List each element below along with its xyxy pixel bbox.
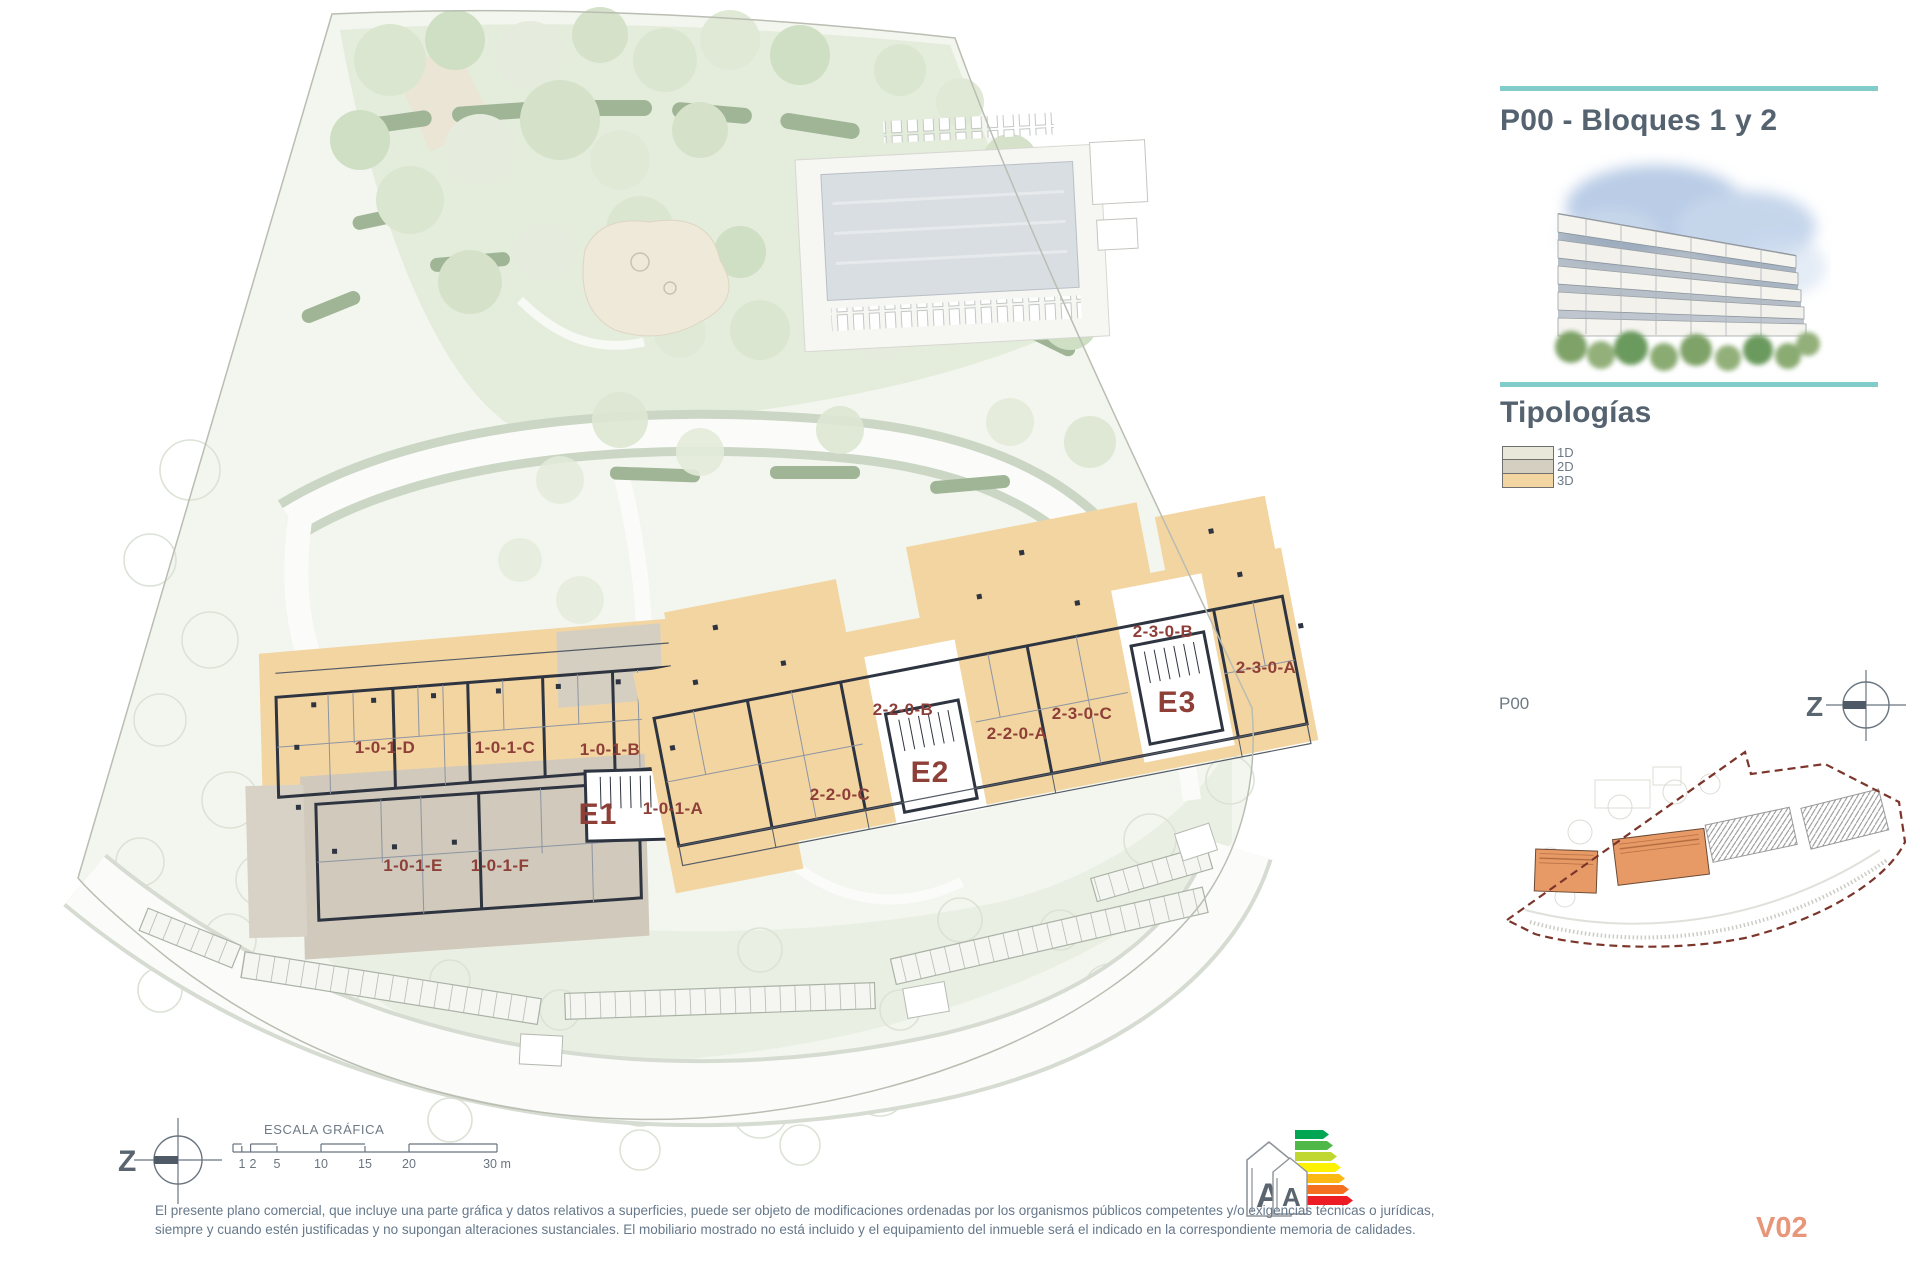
legend-label-3d: 3D (1554, 474, 1574, 488)
legend-swatch-3d (1502, 474, 1554, 488)
unit-label-1-0-1-b: 1-0-1-B (580, 740, 640, 760)
legend-row-1d: 1D (1502, 446, 1574, 460)
legend-row-3d: 3D (1502, 474, 1574, 488)
unit-label-2-3-0-a: 2-3-0-A (1236, 658, 1296, 678)
legal-disclaimer: El presente plano comercial, que incluye… (155, 1202, 1455, 1240)
section-accent-rule (1500, 382, 1878, 387)
unit-label-2-2-0-a: 2-2-0-A (987, 724, 1047, 744)
scalebar-tick-10: 10 (314, 1157, 328, 1171)
core-label-e2: E2 (911, 756, 950, 790)
unit-label-1-0-1-a: 1-0-1-A (643, 799, 703, 819)
page-title: P00 - Bloques 1 y 2 (1500, 104, 1777, 138)
legend-label-1d: 1D (1554, 446, 1574, 460)
scalebar-tick-2: 2 (250, 1157, 257, 1171)
legend-row-2d: 2D (1502, 460, 1574, 474)
unit-label-2-3-0-b: 2-3-0-B (1133, 622, 1193, 642)
legend-swatch-1d (1502, 446, 1554, 460)
keyplan-compass-letter: Z (1806, 691, 1823, 722)
unit-label-1-0-1-c: 1-0-1-C (475, 738, 535, 758)
block-1 (241, 616, 705, 961)
unit-label-2-2-0-c: 2-2-0-C (810, 785, 870, 805)
version-tag: V02 (1756, 1212, 1808, 1245)
scalebar-tick-15: 15 (358, 1157, 372, 1171)
scalebar-tick-20: 20 (402, 1157, 416, 1171)
scalebar-tick-30: 30 m (483, 1157, 511, 1171)
north-compass: Z (112, 1112, 232, 1207)
core-label-e3: E3 (1158, 686, 1197, 720)
unit-label-1-0-1-f: 1-0-1-F (471, 856, 530, 876)
north-compass-letter: Z (118, 1145, 136, 1178)
unit-label-1-0-1-e: 1-0-1-E (383, 856, 443, 876)
keyplan-compass: Z (1788, 668, 1913, 743)
top-accent-rule (1500, 86, 1878, 91)
building-watercolor-image (1546, 152, 1831, 382)
unit-label-2-2-0-b: 2-2-0-B (873, 700, 933, 720)
unit-label-2-3-0-c: 2-3-0-C (1052, 704, 1112, 724)
scalebar: 1 2 5 10 15 20 30 m (228, 1138, 528, 1180)
keyplan-label: P00 (1499, 694, 1529, 714)
scalebar-tick-1: 1 (239, 1157, 246, 1171)
core-label-e1: E1 (579, 798, 618, 832)
typologies-legend: 1D 2D 3D (1502, 446, 1574, 488)
keyplan-minimap (1495, 742, 1915, 1022)
typologies-title: Tipologías (1500, 396, 1651, 430)
legend-label-2d: 2D (1554, 460, 1574, 474)
scalebar-tick-5: 5 (274, 1157, 281, 1171)
legend-swatch-2d (1502, 460, 1554, 474)
scalebar-title: ESCALA GRÁFICA (264, 1122, 384, 1137)
unit-label-1-0-1-d: 1-0-1-D (355, 738, 415, 758)
site-plan-sheet: 1-0-1-D 1-0-1-C 1-0-1-B 1-0-1-A 1-0-1-E … (0, 0, 1920, 1280)
